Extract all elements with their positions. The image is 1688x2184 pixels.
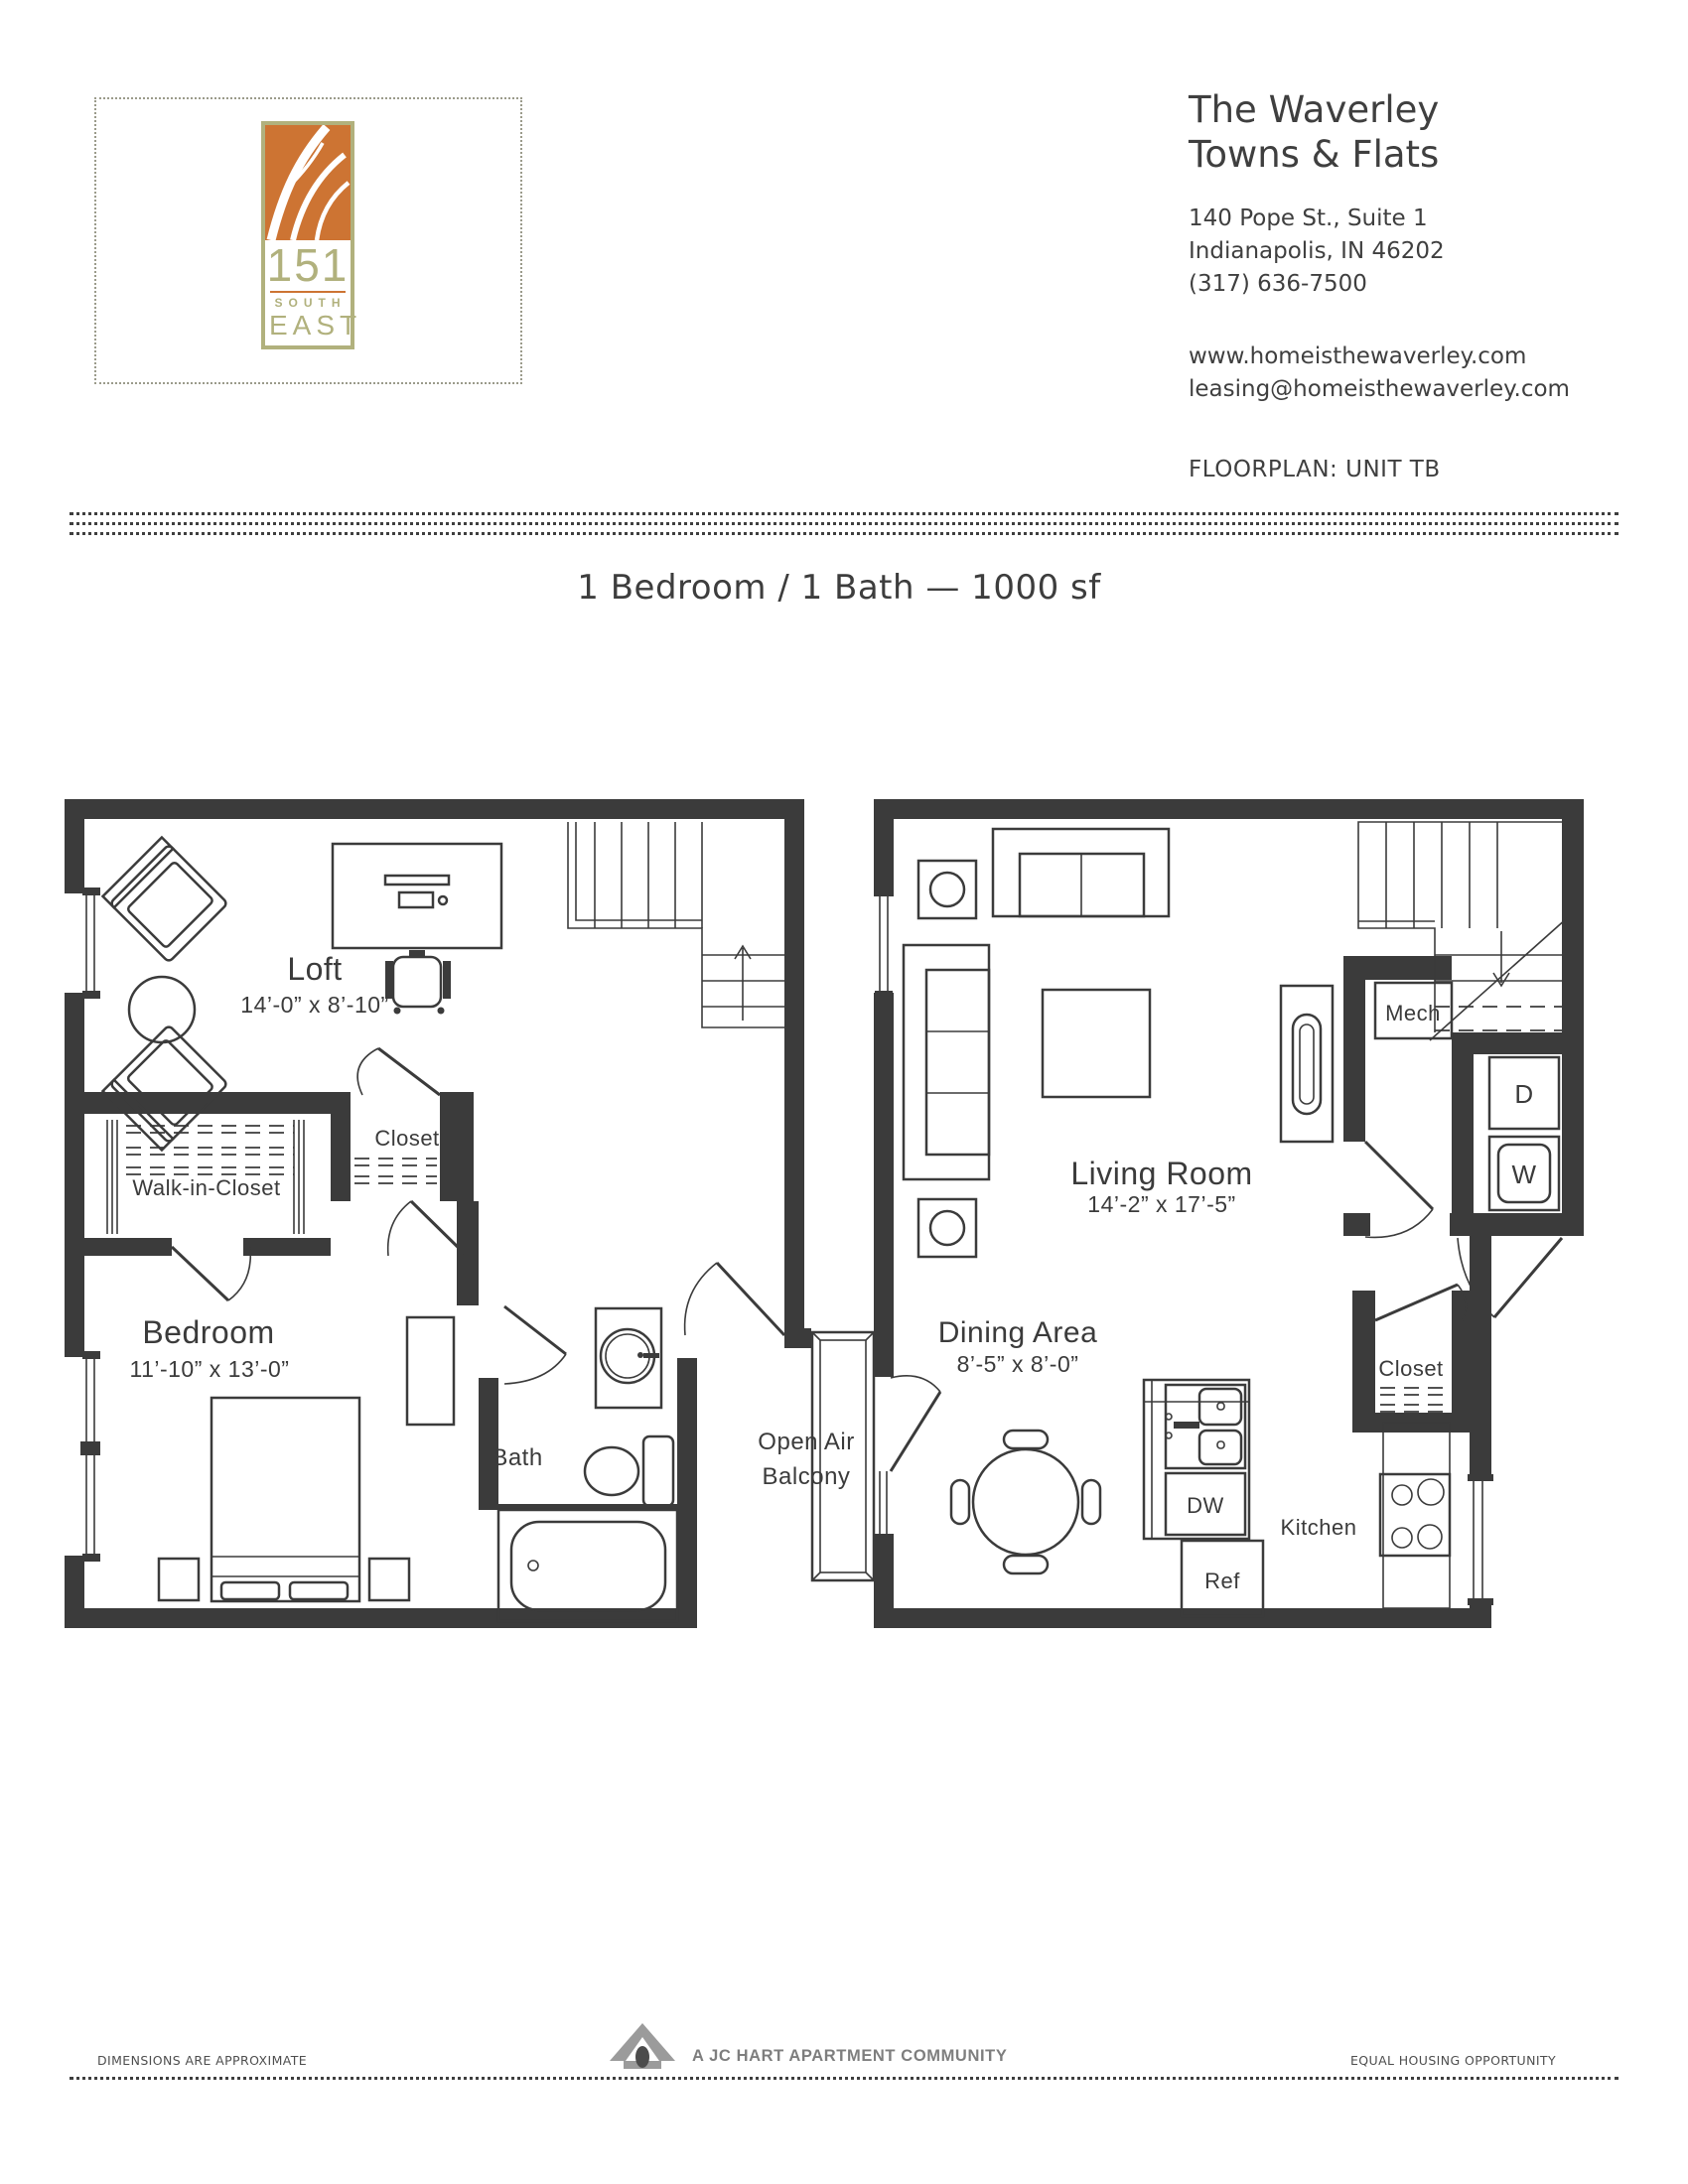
dresser	[407, 1317, 454, 1425]
stairs-up-arrow	[735, 946, 751, 1021]
label-kitchen: Kitchen	[1281, 1515, 1357, 1540]
dotted-row	[70, 2077, 1618, 2080]
label-closet-main: Closet	[1378, 1356, 1443, 1381]
dotted-row	[70, 522, 1618, 525]
footer-community-text: A JC HART APARTMENT COMMUNITY	[692, 2047, 1007, 2066]
label-walk-in-closet: Walk-in-Closet	[132, 1175, 280, 1200]
end-table-lamp-top	[918, 861, 976, 918]
label-living-room: Living Room	[1070, 1156, 1252, 1191]
header: The Waverley Towns & Flats 140 Pope St.,…	[1189, 87, 1645, 177]
community-logo: 151 SOUTH EAST	[261, 121, 354, 349]
pillow	[221, 1582, 279, 1599]
property-name-line1: The Waverley	[1189, 87, 1645, 132]
property-name-line2: Towns & Flats	[1189, 132, 1645, 177]
logo-branches-icon	[265, 125, 351, 240]
footer-equal-housing: EQUAL HOUSING OPPORTUNITY	[1350, 2053, 1556, 2068]
label-balcony-line1: Open Air	[758, 1429, 854, 1455]
tv-console	[1281, 986, 1333, 1142]
sink-faucet	[1174, 1422, 1199, 1429]
label-living-dim: 14’-2” x 17’-5”	[1087, 1191, 1235, 1217]
address-street: 140 Pope St., Suite 1	[1189, 203, 1445, 235]
floorplan-drawing: Loft 14’-0” x 8’-10” Closet Walk-in-Clos…	[0, 774, 1688, 1648]
coffee-table	[1043, 990, 1150, 1097]
end-table-lamp-bottom	[918, 1199, 976, 1257]
bath-vanity	[596, 1308, 661, 1408]
logo-divider	[270, 291, 346, 293]
upper-stairs	[568, 822, 784, 1027]
label-bath: Bath	[492, 1444, 542, 1471]
desk-monitor	[385, 876, 449, 885]
logo-word-east: EAST	[265, 310, 351, 341]
label-dishwasher: DW	[1187, 1493, 1224, 1518]
label-dining-area: Dining Area	[938, 1316, 1098, 1349]
loft-desk	[333, 844, 501, 948]
property-name: The Waverley Towns & Flats	[1189, 87, 1645, 177]
label-mech: Mech	[1385, 1001, 1441, 1025]
dotted-separator-bottom	[70, 2077, 1618, 2080]
page-title: 1 Bedroom / 1 Bath — 1000 sf	[0, 568, 1678, 608]
logo-word-south: SOUTH	[265, 296, 351, 310]
pillow	[290, 1582, 348, 1599]
label-closet-upper: Closet	[374, 1126, 439, 1151]
label-bedroom-dim: 11’-10” x 13’-0”	[130, 1356, 290, 1382]
kitchen-counter	[1383, 1423, 1450, 1608]
loft-armchair-1	[103, 838, 228, 963]
nightstand	[369, 1559, 409, 1600]
phone-number: (317) 636-7500	[1189, 268, 1445, 301]
footer-disclaimer: DIMENSIONS ARE APPROXIMATE	[97, 2053, 307, 2068]
loft-armchair-2	[103, 1025, 228, 1151]
label-dryer: D	[1514, 1079, 1533, 1109]
loft-desk-chair	[385, 950, 451, 1015]
nightstand	[159, 1559, 199, 1600]
balcony-rail	[812, 1332, 874, 1580]
label-balcony-line2: Balcony	[763, 1463, 851, 1490]
loveseat	[993, 829, 1169, 916]
label-bedroom: Bedroom	[142, 1314, 274, 1350]
dotted-row	[70, 512, 1618, 515]
website-url: www.homeisthewaverley.com	[1189, 341, 1570, 373]
web-block: www.homeisthewaverley.com leasing@homeis…	[1189, 341, 1570, 406]
dotted-separator-top	[70, 512, 1618, 542]
address-block: 140 Pope St., Suite 1 Indianapolis, IN 4…	[1189, 203, 1445, 301]
address-city: Indianapolis, IN 46202	[1189, 235, 1445, 268]
logo-number: 151	[265, 240, 351, 290]
desk-keyboard	[399, 892, 433, 907]
bathtub	[498, 1510, 677, 1621]
label-loft: Loft	[287, 951, 342, 987]
upper-floor-walls	[65, 799, 811, 1628]
toilet	[585, 1436, 673, 1506]
email-address: leasing@homeisthewaverley.com	[1189, 373, 1570, 406]
label-dining-dim: 8’-5” x 8’-0”	[957, 1351, 1079, 1377]
sofa	[904, 945, 989, 1179]
dotted-row	[70, 532, 1618, 535]
stove	[1380, 1474, 1450, 1556]
label-refrigerator: Ref	[1204, 1569, 1240, 1593]
closet-shelving	[354, 1159, 437, 1183]
label-washer: W	[1511, 1160, 1536, 1189]
label-loft-dim: 14’-0” x 8’-10”	[240, 992, 388, 1018]
jc-hart-house-icon	[606, 2021, 679, 2069]
floorplan-flyer-page: 151 SOUTH EAST The Waverley Towns & Flat…	[0, 0, 1688, 2184]
desk-mouse	[439, 896, 447, 904]
logo-box: 151 SOUTH EAST	[94, 97, 522, 384]
main-closet-shelving	[1380, 1388, 1446, 1412]
dining-table-set	[951, 1431, 1100, 1573]
floorplan-unit-label: FLOORPLAN: UNIT TB	[1189, 457, 1441, 482]
bed	[211, 1398, 359, 1601]
stairs-down-arrow	[1493, 931, 1509, 986]
